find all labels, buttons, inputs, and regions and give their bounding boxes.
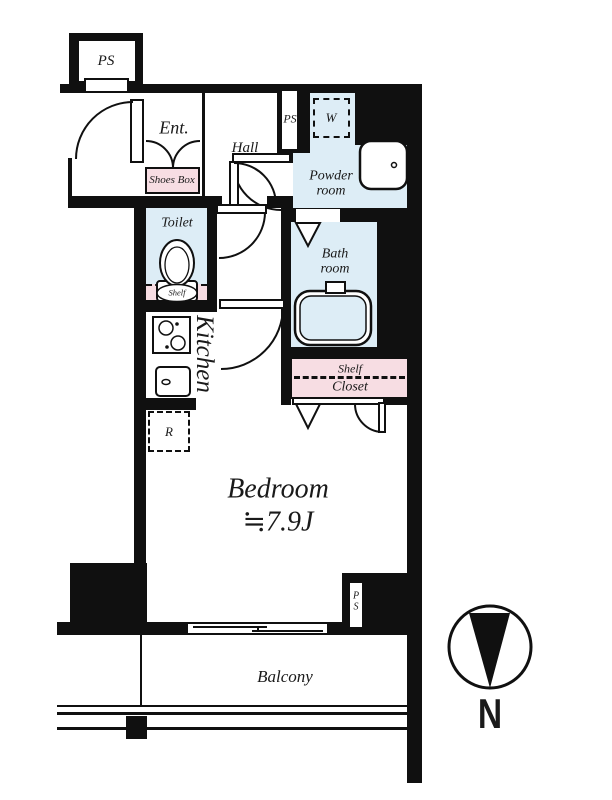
ps-bottom-label-s: S bbox=[353, 602, 359, 613]
entrance-label: Ent. bbox=[159, 119, 189, 138]
bedroom-door-swing bbox=[221, 307, 283, 369]
kitchen-sink bbox=[156, 367, 190, 396]
vanity-sink bbox=[360, 141, 407, 189]
bedroom-door-leaf bbox=[220, 300, 284, 308]
ps-middle-label: PS bbox=[283, 113, 296, 126]
shoes-box-label: Shoes Box bbox=[149, 175, 195, 187]
toilet-door-swing bbox=[219, 212, 265, 258]
balcony-label: Balcony bbox=[257, 668, 313, 686]
closet-shelf-label: Shelf bbox=[338, 363, 362, 376]
toilet-door-leaf bbox=[217, 205, 266, 213]
hall-door-swing bbox=[234, 163, 276, 205]
bedroom-size-label: ≒7.9J bbox=[243, 507, 314, 536]
floor-plan: PS Ent. Hall PS W Powder room Shoes Box … bbox=[0, 0, 612, 800]
refrigerator-label: R bbox=[165, 425, 173, 439]
hall-door-leaf bbox=[230, 162, 238, 205]
toilet-shelf-label: Shelf bbox=[169, 289, 186, 298]
powder-room-label-line1: Powder bbox=[309, 169, 353, 184]
bath-room-label: Bath room bbox=[320, 247, 349, 276]
ps-bottom-label-p: P bbox=[353, 592, 359, 603]
entrance-door-leaf bbox=[131, 100, 143, 162]
bathtub-deck bbox=[326, 282, 345, 293]
powder-room-label-line2: room bbox=[309, 184, 353, 199]
ps-bottom-label: P S bbox=[353, 592, 359, 613]
kitchen-label: Kitchen bbox=[191, 315, 217, 393]
toilet-label: Toilet bbox=[161, 217, 192, 232]
vanity-faucet bbox=[392, 163, 397, 168]
closet-label: Closet bbox=[332, 381, 368, 396]
bedroom-label: Bedroom bbox=[227, 474, 329, 503]
ps-top-label: PS bbox=[98, 54, 115, 70]
stove-knob bbox=[175, 322, 179, 326]
shoes-box-door-swing bbox=[146, 141, 173, 168]
bath-room-label-line2: room bbox=[320, 262, 349, 277]
bathtub-inner bbox=[300, 296, 366, 340]
washing-machine-label: W bbox=[326, 111, 337, 125]
powder-room-label: Powder room bbox=[309, 169, 353, 198]
closet-folding-door bbox=[296, 404, 320, 428]
compass-north-label: N bbox=[478, 692, 502, 736]
shoes-box-door-swing bbox=[173, 141, 200, 168]
stove-knob bbox=[165, 345, 169, 349]
stove bbox=[153, 317, 190, 353]
hall-label: Hall bbox=[232, 141, 259, 157]
compass-needle bbox=[469, 613, 510, 688]
entrance-door-swing bbox=[76, 102, 133, 159]
closet-door-leaf bbox=[379, 403, 385, 432]
bath-room-label-line1: Bath bbox=[320, 247, 349, 262]
bath-folding-door bbox=[296, 223, 320, 246]
entrance-door-leaf bbox=[85, 79, 128, 92]
